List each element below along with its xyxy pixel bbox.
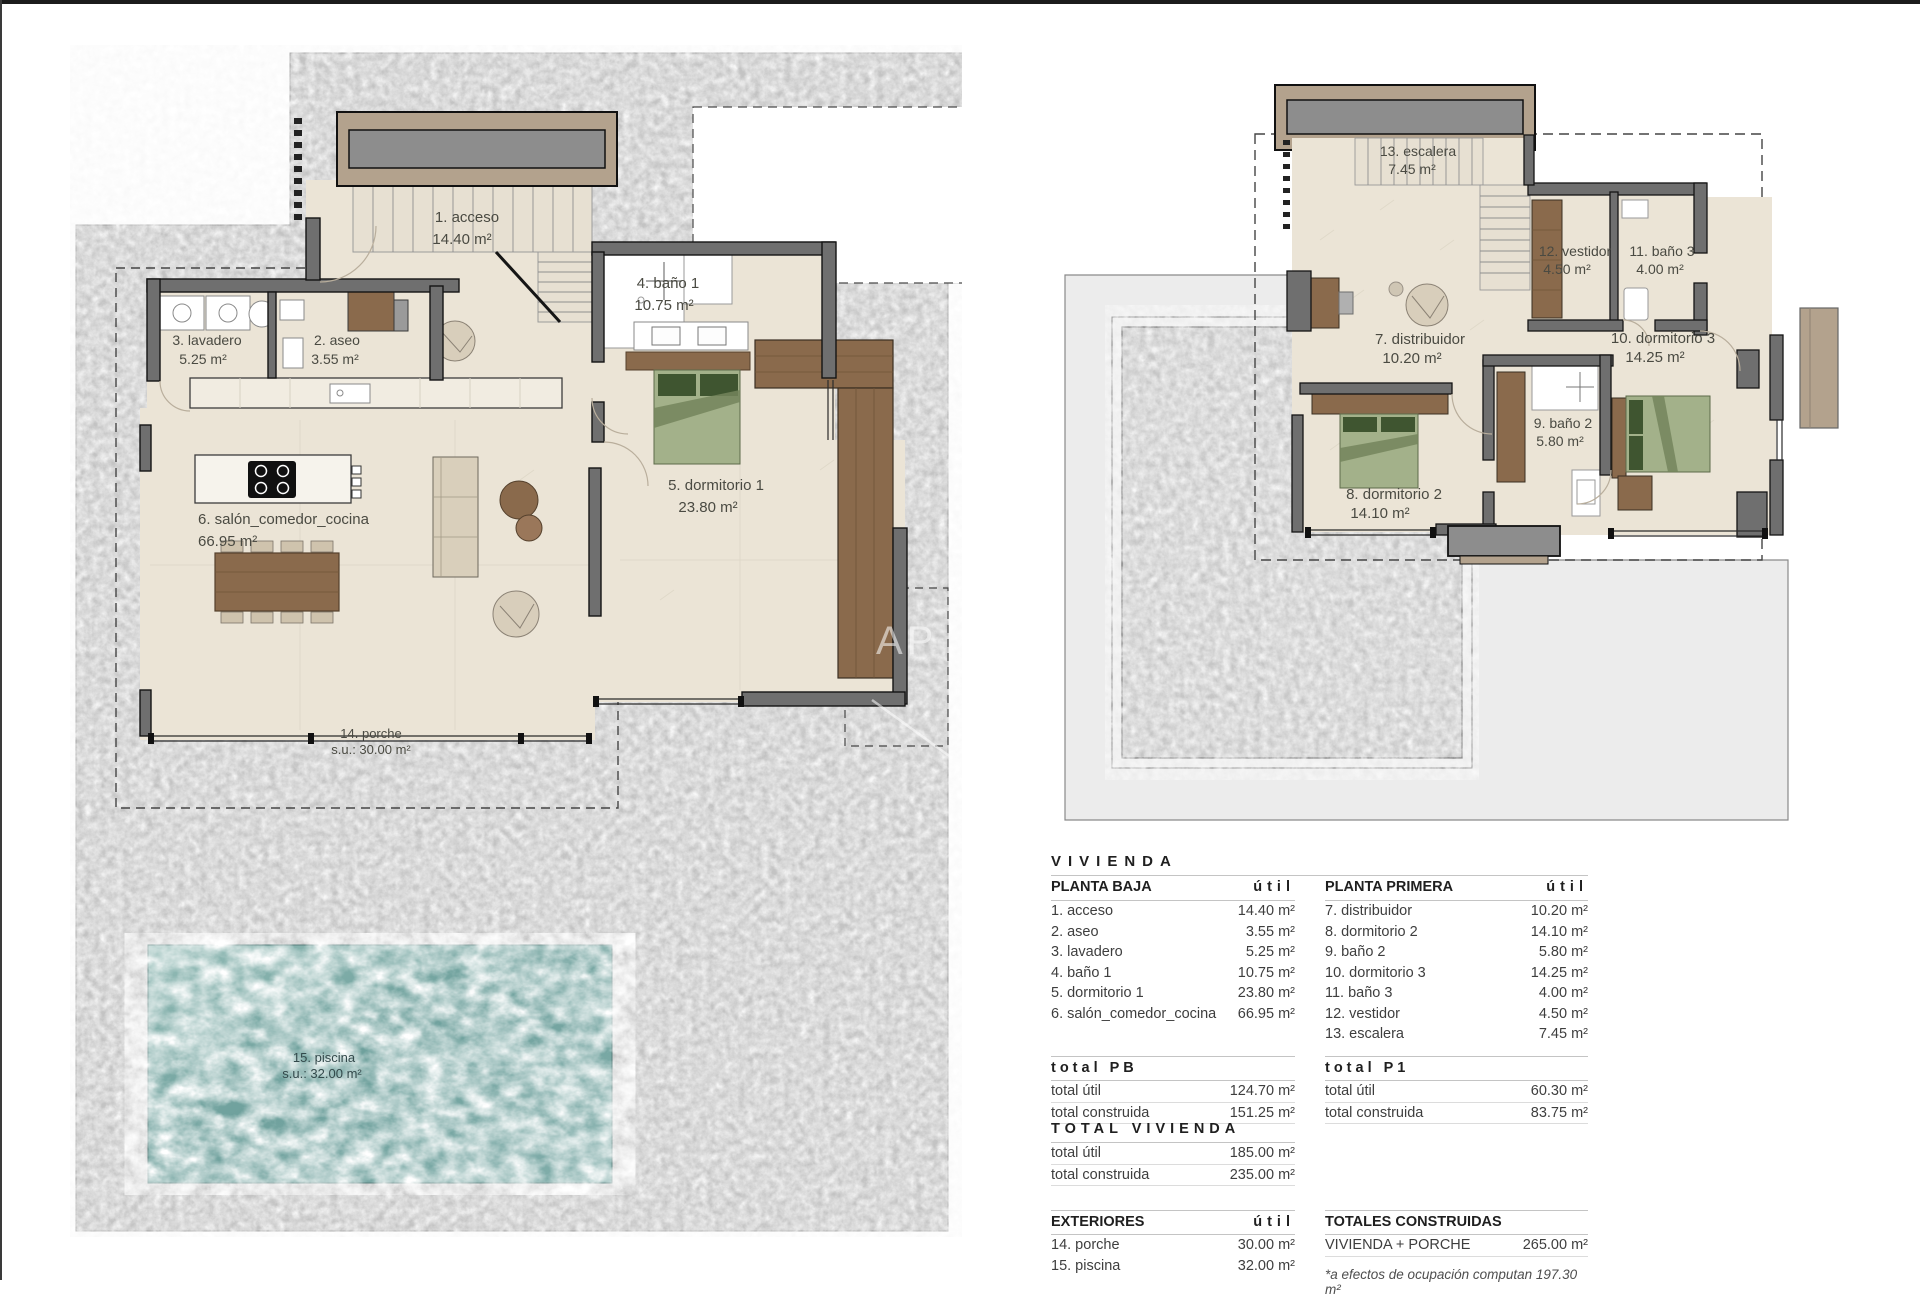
- table-row: total construida83.75 m²: [1325, 1103, 1588, 1125]
- occupancy-note: *a efectos de ocupación computan 197.30 …: [1325, 1267, 1588, 1297]
- util-header: útil: [1253, 1214, 1295, 1230]
- cell-label: 6. salón_comedor_cocina: [1051, 1004, 1216, 1025]
- cell-value: 3.55 m²: [1246, 922, 1295, 943]
- cell-value: 265.00 m²: [1523, 1235, 1588, 1256]
- desk: [1311, 278, 1339, 328]
- cell-value: 60.30 m²: [1531, 1081, 1588, 1102]
- table-row: 8. dormitorio 214.10 m²: [1325, 922, 1588, 943]
- cell-label: total útil: [1051, 1143, 1101, 1164]
- page-top-border: [0, 0, 1920, 4]
- cell-label: 8. dormitorio 2: [1325, 922, 1418, 943]
- cell-label: total construida: [1325, 1103, 1423, 1124]
- cell-value: 32.00 m²: [1238, 1256, 1295, 1277]
- cell-value: 235.00 m²: [1230, 1165, 1295, 1186]
- cell-label: 7. distribuidor: [1325, 901, 1412, 922]
- total-p1-block: total P1 total útil60.30 m² total constr…: [1325, 1056, 1588, 1124]
- cell-value: 66.95 m²: [1238, 1004, 1295, 1025]
- kitchen-sink: [330, 384, 370, 403]
- cell-label: 9. baño 2: [1325, 942, 1385, 963]
- sofa: [433, 457, 478, 577]
- cell-value: 4.50 m²: [1539, 1004, 1588, 1025]
- first-floor-plan: 13. escalera 7.45 m² 12. vestidor 4.50 m…: [1040, 78, 1852, 826]
- total-p1-header: total P1: [1325, 1060, 1409, 1076]
- total-pb-block: total PB total útil124.70 m² total const…: [1051, 1056, 1295, 1124]
- dormitorio2-area: 14.10 m²: [1350, 505, 1409, 522]
- vestidor-wardrobe: [1532, 200, 1562, 318]
- table-row: 14. porche30.00 m²: [1051, 1235, 1295, 1256]
- bano2-label: 9. baño 2: [1534, 415, 1593, 431]
- cell-label: 12. vestidor: [1325, 1004, 1400, 1025]
- planta-primera-column: PLANTA PRIMERA útil 7. distribuidor10.20…: [1325, 879, 1588, 1045]
- table-row: 15. piscina32.00 m²: [1051, 1256, 1295, 1277]
- table-row: 9. baño 25.80 m²: [1325, 942, 1588, 963]
- bano2-area: 5.80 m²: [1536, 433, 1584, 449]
- dormitorio3-area: 14.25 m²: [1625, 349, 1684, 366]
- cell-value: 4.00 m²: [1539, 983, 1588, 1004]
- headboard-3: [1612, 398, 1626, 478]
- aseo-label: 2. aseo: [314, 332, 360, 348]
- cell-label: 4. baño 1: [1051, 963, 1111, 984]
- piscina-label: 15. piscina: [293, 1050, 356, 1065]
- area-summary-table: VIVIENDA PLANTA BAJA útil 1. acceso14.40…: [1051, 853, 1588, 1280]
- cell-label: total construida: [1051, 1165, 1149, 1186]
- cell-label: 13. escalera: [1325, 1024, 1404, 1045]
- page-left-border: [0, 0, 2, 1280]
- fence-dots: [294, 118, 302, 220]
- swimming-pool: [148, 945, 612, 1183]
- dormitorio1-area: 23.80 m²: [678, 499, 737, 516]
- cell-label: 5. dormitorio 1: [1051, 983, 1144, 1004]
- cell-value: 124.70 m²: [1230, 1081, 1295, 1102]
- cell-label: total construida: [1051, 1103, 1149, 1124]
- dining-table: [215, 553, 339, 611]
- cell-value: 10.75 m²: [1238, 963, 1295, 984]
- bano3-label: 11. baño 3: [1629, 243, 1694, 259]
- cell-value: 30.00 m²: [1238, 1235, 1295, 1256]
- bano2-wardrobe: [1497, 372, 1525, 482]
- table-row: 5. dormitorio 123.80 m²: [1051, 983, 1295, 1004]
- planta-primera-header: PLANTA PRIMERA: [1325, 879, 1453, 895]
- headboard-2: [1312, 394, 1448, 414]
- cell-label: 3. lavadero: [1051, 942, 1123, 963]
- ground-floor-plan: 1. acceso 14.40 m² 4. baño 1 10.75 m² 3.…: [70, 45, 962, 1237]
- cell-label: total útil: [1325, 1081, 1375, 1102]
- cell-label: 14. porche: [1051, 1235, 1120, 1256]
- total-vivienda-block: TOTAL VIVIENDA total útil185.00 m² total…: [1051, 1121, 1295, 1186]
- svg-text:AP: AP: [876, 619, 937, 663]
- coffee-table-small: [516, 515, 542, 541]
- rear-canopy: [1448, 526, 1560, 564]
- exteriores-block: EXTERIORES útil 14. porche30.00 m² 15. p…: [1051, 1210, 1295, 1276]
- lavadero-label: 3. lavadero: [172, 332, 241, 348]
- cell-label: VIVIENDA + PORCHE: [1325, 1235, 1470, 1256]
- summary-title: VIVIENDA: [1051, 853, 1178, 870]
- table-row: 10. dormitorio 314.25 m²: [1325, 963, 1588, 984]
- bano1-area: 10.75 m²: [634, 297, 693, 314]
- cell-value: 5.80 m²: [1539, 942, 1588, 963]
- vestidor-area: 4.50 m²: [1543, 261, 1591, 277]
- bano1-label: 4. baño 1: [637, 275, 700, 292]
- table-row: 6. salón_comedor_cocina66.95 m²: [1051, 1004, 1295, 1025]
- cell-label: 15. piscina: [1051, 1256, 1120, 1277]
- lavadero-area: 5.25 m²: [179, 351, 227, 367]
- cell-value: 14.10 m²: [1531, 922, 1588, 943]
- cell-value: 14.25 m²: [1531, 963, 1588, 984]
- salon-area: 66.95 m²: [198, 533, 257, 550]
- total-vivienda-header: TOTAL VIVIENDA: [1051, 1121, 1240, 1137]
- table-row: 4. baño 110.75 m²: [1051, 963, 1295, 984]
- total-pb-header: total PB: [1051, 1060, 1138, 1076]
- cell-value: 10.20 m²: [1531, 901, 1588, 922]
- table-row: 12. vestidor4.50 m²: [1325, 1004, 1588, 1025]
- kitchen-counter: [190, 378, 562, 408]
- table-row: 11. baño 34.00 m²: [1325, 983, 1588, 1004]
- table-row: total útil60.30 m²: [1325, 1081, 1588, 1103]
- cell-label: 1. acceso: [1051, 901, 1113, 922]
- cell-value: 23.80 m²: [1238, 983, 1295, 1004]
- entrance-canopy: [337, 112, 617, 186]
- util-header: útil: [1253, 879, 1295, 895]
- table-row: total construida235.00 m²: [1051, 1165, 1295, 1187]
- fence-dots-upper: [1283, 140, 1290, 229]
- bano3-area: 4.00 m²: [1636, 261, 1684, 277]
- coffee-table-large: [500, 481, 538, 519]
- cell-label: 10. dormitorio 3: [1325, 963, 1426, 984]
- dormitorio1-label: 5. dormitorio 1: [668, 477, 764, 494]
- planta-baja-column: PLANTA BAJA útil 1. acceso14.40 m² 2. as…: [1051, 879, 1295, 1024]
- cooktop: [248, 461, 296, 498]
- cell-label: 11. baño 3: [1325, 983, 1392, 1004]
- entry-bench: [348, 287, 394, 331]
- escalera-area: 7.45 m²: [1388, 161, 1436, 177]
- salon-label: 6. salón_comedor_cocina: [198, 511, 370, 528]
- table-row: total útil185.00 m²: [1051, 1143, 1295, 1165]
- porche-area: s.u.: 30.00 m²: [331, 742, 411, 757]
- distribuidor-area: 10.20 m²: [1382, 350, 1441, 367]
- table-row: 2. aseo3.55 m²: [1051, 922, 1295, 943]
- dormitorio2-label: 8. dormitorio 2: [1346, 486, 1442, 503]
- totales-construidas-block: TOTALES CONSTRUIDAS VIVIENDA + PORCHE265…: [1325, 1210, 1588, 1297]
- cell-value: 7.45 m²: [1539, 1024, 1588, 1045]
- table-row: 13. escalera7.45 m²: [1325, 1024, 1588, 1045]
- porche-label: 14. porche: [340, 726, 401, 741]
- side-deck-strip: [1800, 308, 1838, 428]
- acceso-label: 1. acceso: [435, 209, 499, 226]
- cell-value: 14.40 m²: [1238, 901, 1295, 922]
- cell-value: 83.75 m²: [1531, 1103, 1588, 1124]
- vestidor-label: 12. vestidor: [1539, 243, 1612, 259]
- table-row: 7. distribuidor10.20 m²: [1325, 901, 1588, 922]
- cell-label: 2. aseo: [1051, 922, 1099, 943]
- escalera-label: 13. escalera: [1380, 143, 1456, 159]
- piscina-area: s.u.: 32.00 m²: [282, 1066, 362, 1081]
- acceso-area: 14.40 m²: [432, 231, 491, 248]
- headboard: [626, 352, 750, 370]
- cell-value: 151.25 m²: [1230, 1103, 1295, 1124]
- planta-baja-header: PLANTA BAJA: [1051, 879, 1152, 895]
- shower-2: [1532, 366, 1598, 410]
- table-row: VIVIENDA + PORCHE265.00 m²: [1325, 1235, 1588, 1257]
- table-row: total útil124.70 m²: [1051, 1081, 1295, 1103]
- cell-value: 5.25 m²: [1246, 942, 1295, 963]
- cell-label: total útil: [1051, 1081, 1101, 1102]
- pouf: [1406, 284, 1448, 326]
- exteriores-header: EXTERIORES: [1051, 1214, 1144, 1230]
- totales-construidas-header: TOTALES CONSTRUIDAS: [1325, 1214, 1502, 1230]
- table-row: 1. acceso14.40 m²: [1051, 901, 1295, 922]
- table-row: 3. lavadero5.25 m²: [1051, 942, 1295, 963]
- vanity: [634, 322, 748, 350]
- aseo-area: 3.55 m²: [311, 351, 359, 367]
- util-header: útil: [1546, 879, 1588, 895]
- vanity-2: [1572, 470, 1600, 516]
- dormitorio3-label: 10. dormitorio 3: [1611, 330, 1715, 347]
- distribuidor-label: 7. distribuidor: [1375, 331, 1465, 348]
- divider: [1051, 875, 1588, 876]
- cell-value: 185.00 m²: [1230, 1143, 1295, 1164]
